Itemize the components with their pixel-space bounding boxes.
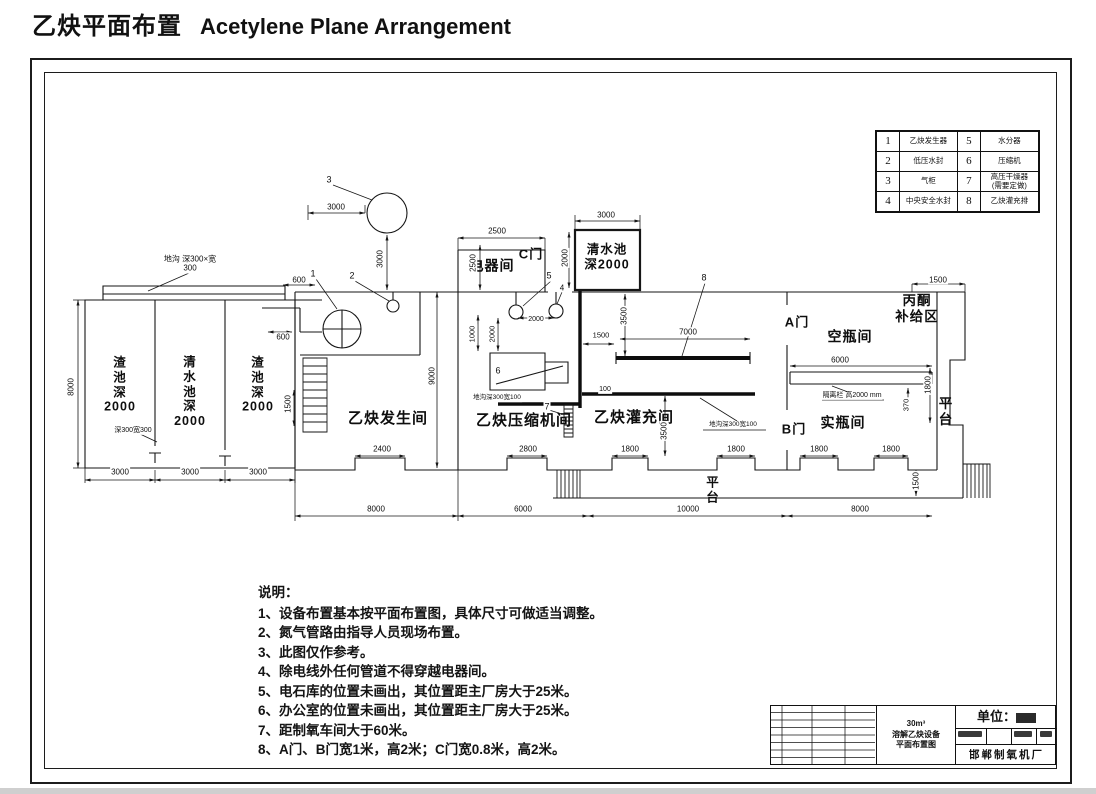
room-label: 平 台 — [706, 475, 720, 505]
dimension-label: 3000 — [248, 467, 268, 476]
dimension-label: 1 — [309, 269, 316, 280]
notes-block: 说明： 1、设备布置基本按平面布置图，具体尺寸可做适当调整。2、氮气管路由指导人… — [258, 583, 738, 760]
unit-label: 单位： — [977, 709, 1016, 724]
room-label: 空瓶间 — [828, 329, 873, 346]
room-label: 丙酮 补给区 — [895, 293, 939, 325]
screenshot-bottom-edge — [0, 788, 1096, 794]
dimension-label: 2400 — [372, 444, 392, 453]
legend-name: 乙炔发生器 — [900, 131, 958, 152]
legend-number: 5 — [957, 131, 980, 152]
dimension-label: 8000 — [366, 504, 386, 513]
dimension-label: 3500 — [659, 421, 668, 441]
illegible-stamp-text — [958, 731, 982, 737]
equipment-legend: 1乙炔发生器5水分器2低压水封6压缩机3气柜7高压干燥器 (需要定做)4中央安全… — [875, 130, 1040, 213]
note-item: 2、氮气管路由指导人员现场布置。 — [258, 623, 738, 643]
dimension-label: 2000 — [527, 316, 545, 324]
drawing-title-volume: 30m³ — [877, 719, 955, 730]
legend-row: 2低压水封6压缩机 — [876, 152, 1039, 172]
dimension-label: 4 — [559, 283, 565, 292]
stairs-hatching — [303, 358, 990, 498]
dimension-label: 3000 — [596, 210, 616, 219]
dimension-label: 3000 — [326, 202, 346, 211]
unit-row: 单位：mm — [956, 706, 1057, 728]
title-block-right: 单位：mm 邯郸制氧机厂 — [956, 706, 1057, 764]
room-label: 实瓶间 — [821, 415, 866, 432]
dimension-label: 1800 — [809, 444, 829, 453]
dimension-label: 2500 — [468, 253, 477, 273]
note-item: 5、电石库的位置未画出，其位置距主厂房大于25米。 — [258, 682, 738, 702]
dimension-label: 8 — [700, 273, 707, 284]
company-name: 邯郸制氧机厂 — [956, 747, 1057, 762]
dimension-label: 6000 — [830, 355, 850, 364]
dimension-label: 3 — [325, 175, 332, 186]
dimension-label: 1800 — [923, 375, 932, 395]
legend-number: 1 — [876, 131, 900, 152]
dimension-label: 地沟深300宽100 — [708, 421, 758, 429]
note-item: 3、此图仅作参考。 — [258, 643, 738, 663]
dimension-label: 3000 — [180, 467, 200, 476]
room-label: 乙炔压缩机间 — [476, 412, 572, 430]
dimension-label: 1800 — [726, 444, 746, 453]
dimension-label: 2500 — [487, 226, 507, 235]
stamp-divider — [986, 729, 987, 744]
notes-heading: 说明： — [258, 583, 738, 603]
note-item: 1、设备布置基本按平面布置图，具体尺寸可做适当调整。 — [258, 604, 738, 624]
legend-number: 3 — [876, 172, 900, 192]
dimension-label: 8000 — [850, 504, 870, 513]
legend-name: 乙炔灌充排 — [980, 192, 1039, 213]
dimension-label: 9000 — [427, 366, 436, 386]
dimension-label: 3500 — [619, 306, 628, 326]
drawing-title-cell: 30m³ 溶解乙炔设备 平面布置图 — [876, 706, 956, 764]
dimension-label: 5 — [545, 271, 552, 282]
legend-row: 3气柜7高压干燥器 (需要定做) — [876, 172, 1039, 192]
dimension-label: 深300宽300 — [113, 427, 152, 435]
room-label: 渣 池 深 2000 — [104, 356, 136, 415]
note-item: 7、距制氧车间大于60米。 — [258, 721, 738, 741]
dimension-label: 3000 — [375, 249, 384, 269]
dimension-label: 600 — [275, 332, 290, 341]
notes-list: 1、设备布置基本按平面布置图，具体尺寸可做适当调整。2、氮气管路由指导人员现场布… — [258, 604, 738, 760]
dimension-label: 1500 — [592, 332, 611, 341]
illegible-stamp-text — [1040, 731, 1052, 737]
stamp-divider — [1011, 729, 1012, 744]
dimension-label: 2000 — [489, 325, 498, 344]
dimension-label: 1800 — [620, 444, 640, 453]
dimension-label: 1500 — [911, 471, 920, 491]
stamp-row — [956, 728, 1057, 745]
legend-row: 1乙炔发生器5水分器 — [876, 131, 1039, 152]
dimension-label: 地沟深300宽100 — [472, 394, 522, 402]
room-label: 清 水 池 深 2000 — [174, 355, 206, 429]
dimension-label: 8000 — [66, 377, 75, 397]
dimension-label: 隔离栏 高2000 mm — [821, 392, 882, 400]
legend-name: 气柜 — [900, 172, 958, 192]
room-label: A门 — [785, 314, 809, 329]
legend-number: 8 — [957, 192, 980, 213]
room-label: 清水池 深2000 — [584, 242, 629, 272]
legend-name: 低压水封 — [900, 152, 958, 172]
legend-name: 高压干燥器 (需要定做) — [980, 172, 1039, 192]
note-item: 8、A门、B门宽1米，高2米；C门宽0.8米，高2米。 — [258, 740, 738, 760]
room-label: 乙炔发生间 — [348, 410, 428, 428]
dimension-label: 10000 — [676, 504, 700, 513]
drawing-title-plan: 平面布置图 — [877, 740, 955, 751]
illegible-stamp-text — [1014, 731, 1032, 737]
dimension-label: 3000 — [110, 467, 130, 476]
legend-name: 中央安全水封 — [900, 192, 958, 213]
unit-value: mm — [1016, 713, 1036, 723]
dimension-label: 1500 — [928, 275, 948, 284]
dimension-label: 6000 — [513, 504, 533, 513]
dimension-label: 地沟 深300×宽 300 — [163, 255, 217, 274]
room-label: 渣 池 深 2000 — [242, 356, 274, 415]
dimension-label: 7 — [543, 402, 550, 413]
legend-name: 水分器 — [980, 131, 1039, 152]
legend-number: 6 — [957, 152, 980, 172]
legend-row: 4中央安全水封8乙炔灌充排 — [876, 192, 1039, 213]
dimension-label: 2 — [348, 271, 355, 282]
legend-number: 7 — [957, 172, 980, 192]
dimension-label: 2000 — [560, 248, 569, 268]
legend-number: 4 — [876, 192, 900, 213]
note-item: 4、除电线外任何管道不得穿越电器间。 — [258, 662, 738, 682]
dimension-label: 370 — [903, 398, 912, 413]
dimension-label: 100 — [598, 386, 612, 394]
room-label: 平 台 — [939, 396, 954, 428]
room-label: C门 — [519, 246, 543, 261]
stamp-divider — [1036, 729, 1037, 744]
dimension-label: 600 — [291, 275, 306, 284]
dimension-label: 1800 — [881, 444, 901, 453]
dimension-label: 1000 — [469, 325, 478, 344]
legend-name: 压缩机 — [980, 152, 1039, 172]
room-label: B门 — [782, 421, 806, 436]
drawing-sheet: 乙炔平面布置Acetylene Plane Arrangement — [0, 0, 1096, 794]
title-block: 30m³ 溶解乙炔设备 平面布置图 单位：mm 邯郸制氧机厂 — [770, 705, 1056, 765]
drawing-title-equipment: 溶解乙炔设备 — [877, 730, 955, 741]
dimension-label: 7000 — [678, 327, 698, 336]
dimension-label: 1500 — [283, 394, 292, 414]
legend-number: 2 — [876, 152, 900, 172]
dimension-label: 2800 — [518, 444, 538, 453]
note-item: 6、办公室的位置未画出，其位置距主厂房大于25米。 — [258, 701, 738, 721]
dimension-label: 6 — [494, 366, 501, 377]
